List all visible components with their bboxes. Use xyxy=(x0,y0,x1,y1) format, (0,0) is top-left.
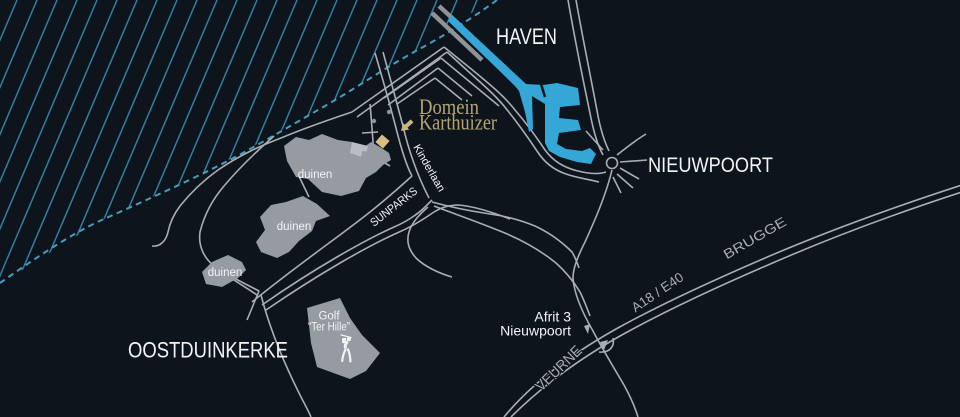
svg-text:HAVEN: HAVEN xyxy=(496,24,557,49)
svg-text:NIEUWPOORT: NIEUWPOORT xyxy=(648,154,773,177)
svg-text:Karthuizer: Karthuizer xyxy=(419,110,498,135)
svg-text:duinen: duinen xyxy=(298,169,333,181)
svg-text:“Ter Hille”: “Ter Hille” xyxy=(308,322,350,334)
svg-text:OOSTDUINKERKE: OOSTDUINKERKE xyxy=(128,338,288,363)
svg-text:duinen: duinen xyxy=(277,221,312,233)
svg-text:duinen: duinen xyxy=(208,267,243,279)
svg-text:Nieuwpoort: Nieuwpoort xyxy=(500,323,571,339)
